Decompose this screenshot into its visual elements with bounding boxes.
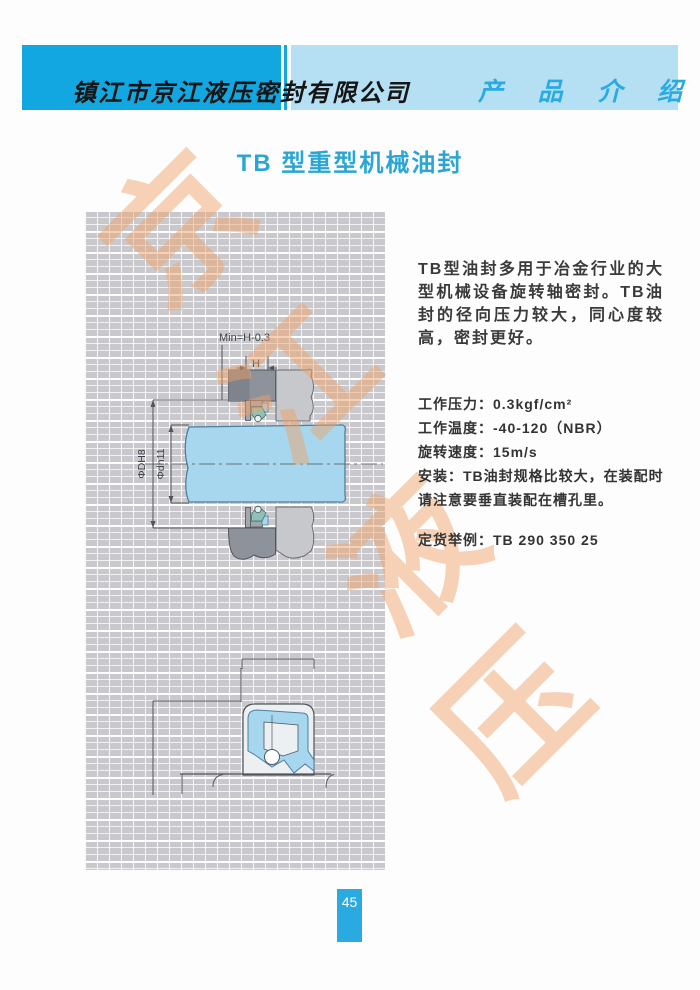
order-example: 定货举例：TB 290 350 25 — [418, 530, 678, 550]
spec-pressure: 工作压力：0.3kgf/cm² — [418, 392, 670, 416]
seal-detail-view — [153, 659, 334, 795]
spec-temperature-value: -40-120（NBR） — [493, 420, 612, 436]
spec-temperature-label: 工作温度： — [418, 420, 493, 436]
spec-pressure-label: 工作压力： — [418, 396, 493, 412]
spec-speed: 旋转速度：15m/s — [418, 440, 670, 464]
spec-list: 工作压力：0.3kgf/cm² 工作温度：-40-120（NBR） 旋转速度：1… — [418, 392, 670, 512]
watermark-char: 压 — [416, 616, 614, 814]
spec-temperature: 工作温度：-40-120（NBR） — [418, 416, 670, 440]
dimension-min-label: Min=H-0.3 — [219, 332, 270, 344]
dimension-h-label: H — [252, 358, 260, 370]
page-title: TB 型重型机械油封 — [0, 143, 700, 178]
upper-housing-block — [276, 369, 314, 421]
dimension-inner-dia-label: Φdh11 — [155, 448, 167, 479]
spec-speed-label: 旋转速度： — [418, 444, 493, 460]
spec-install-label: 安装： — [418, 468, 463, 484]
seal-technical-drawing: Min=H-0.3 H — [85, 210, 385, 870]
spec-pressure-value: 0.3kgf/cm² — [493, 396, 572, 412]
spec-install: 安装：TB油封规格比较大，在装配时请注意要垂直装配在槽孔里。 — [418, 464, 670, 512]
upper-seal-section — [246, 401, 269, 423]
catalog-page: 镇江市京江液压密封有限公司 产 品 介 绍 TB 型重型机械油封 Min=H-0… — [0, 0, 700, 990]
dimension-outer-dia-label: ΦDH8 — [136, 449, 148, 479]
lower-gland-block — [229, 528, 276, 559]
spec-speed-value: 15m/s — [493, 444, 538, 460]
product-description: TB型油封多用于冶金行业的大型机械设备旋转轴密封。TB油封的径向压力较大，同心度… — [418, 258, 664, 350]
page-number-badge: 45 — [337, 889, 362, 942]
lower-seal-section — [246, 506, 269, 528]
order-example-value: TB 290 350 25 — [493, 532, 599, 548]
section-title: 产 品 介 绍 — [478, 72, 695, 108]
order-example-label: 定货举例： — [418, 532, 493, 548]
lower-housing-block — [276, 507, 314, 558]
company-name: 镇江市京江液压密封有限公司 — [72, 73, 410, 108]
